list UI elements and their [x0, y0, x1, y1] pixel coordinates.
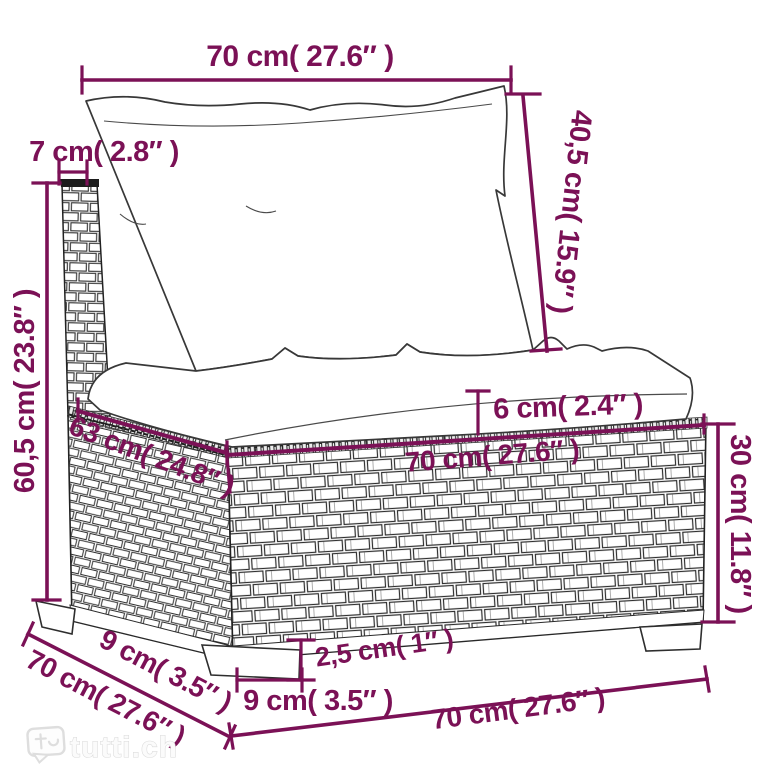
watermark: tutti.ch — [27, 727, 178, 764]
sofa-dimension-diagram: 70 cm( 27.6″ ) 40,5 cm( 15.9″ ) 7 cm( 2.… — [0, 0, 768, 768]
back-post-cap — [60, 179, 99, 187]
leg-front-left — [202, 645, 300, 679]
dim-front-leg-width-label: 9 cm( 3.5″ ) — [243, 685, 393, 717]
dim-total-height-label: 60,5 cm( 23.8″ ) — [9, 289, 41, 493]
back-cushion — [86, 86, 533, 371]
dim-seat-cushion-thickness-label: 6 cm( 2.4″ ) — [493, 388, 644, 425]
tutti-logo-icon — [27, 727, 65, 763]
dim-base-height-label: 30 cm( 11.8″ ) — [724, 434, 756, 613]
dim-cushion-width-top-label: 70 cm( 27.6″ ) — [206, 40, 393, 73]
leg-back-left — [36, 601, 75, 634]
product-dimension-image: 70 cm( 27.6″ ) 40,5 cm( 15.9″ ) 7 cm( 2.… — [0, 0, 768, 768]
watermark-text: tutti.ch — [70, 731, 178, 764]
dim-back-cushion-height-label: 40,5 cm( 15.9″ ) — [544, 109, 597, 315]
dim-base-front-width-label: 70 cm( 27.6″ ) — [430, 682, 607, 736]
dim-back-post-width-label: 7 cm( 2.8″ ) — [29, 136, 179, 168]
leg-front-right — [640, 624, 702, 651]
